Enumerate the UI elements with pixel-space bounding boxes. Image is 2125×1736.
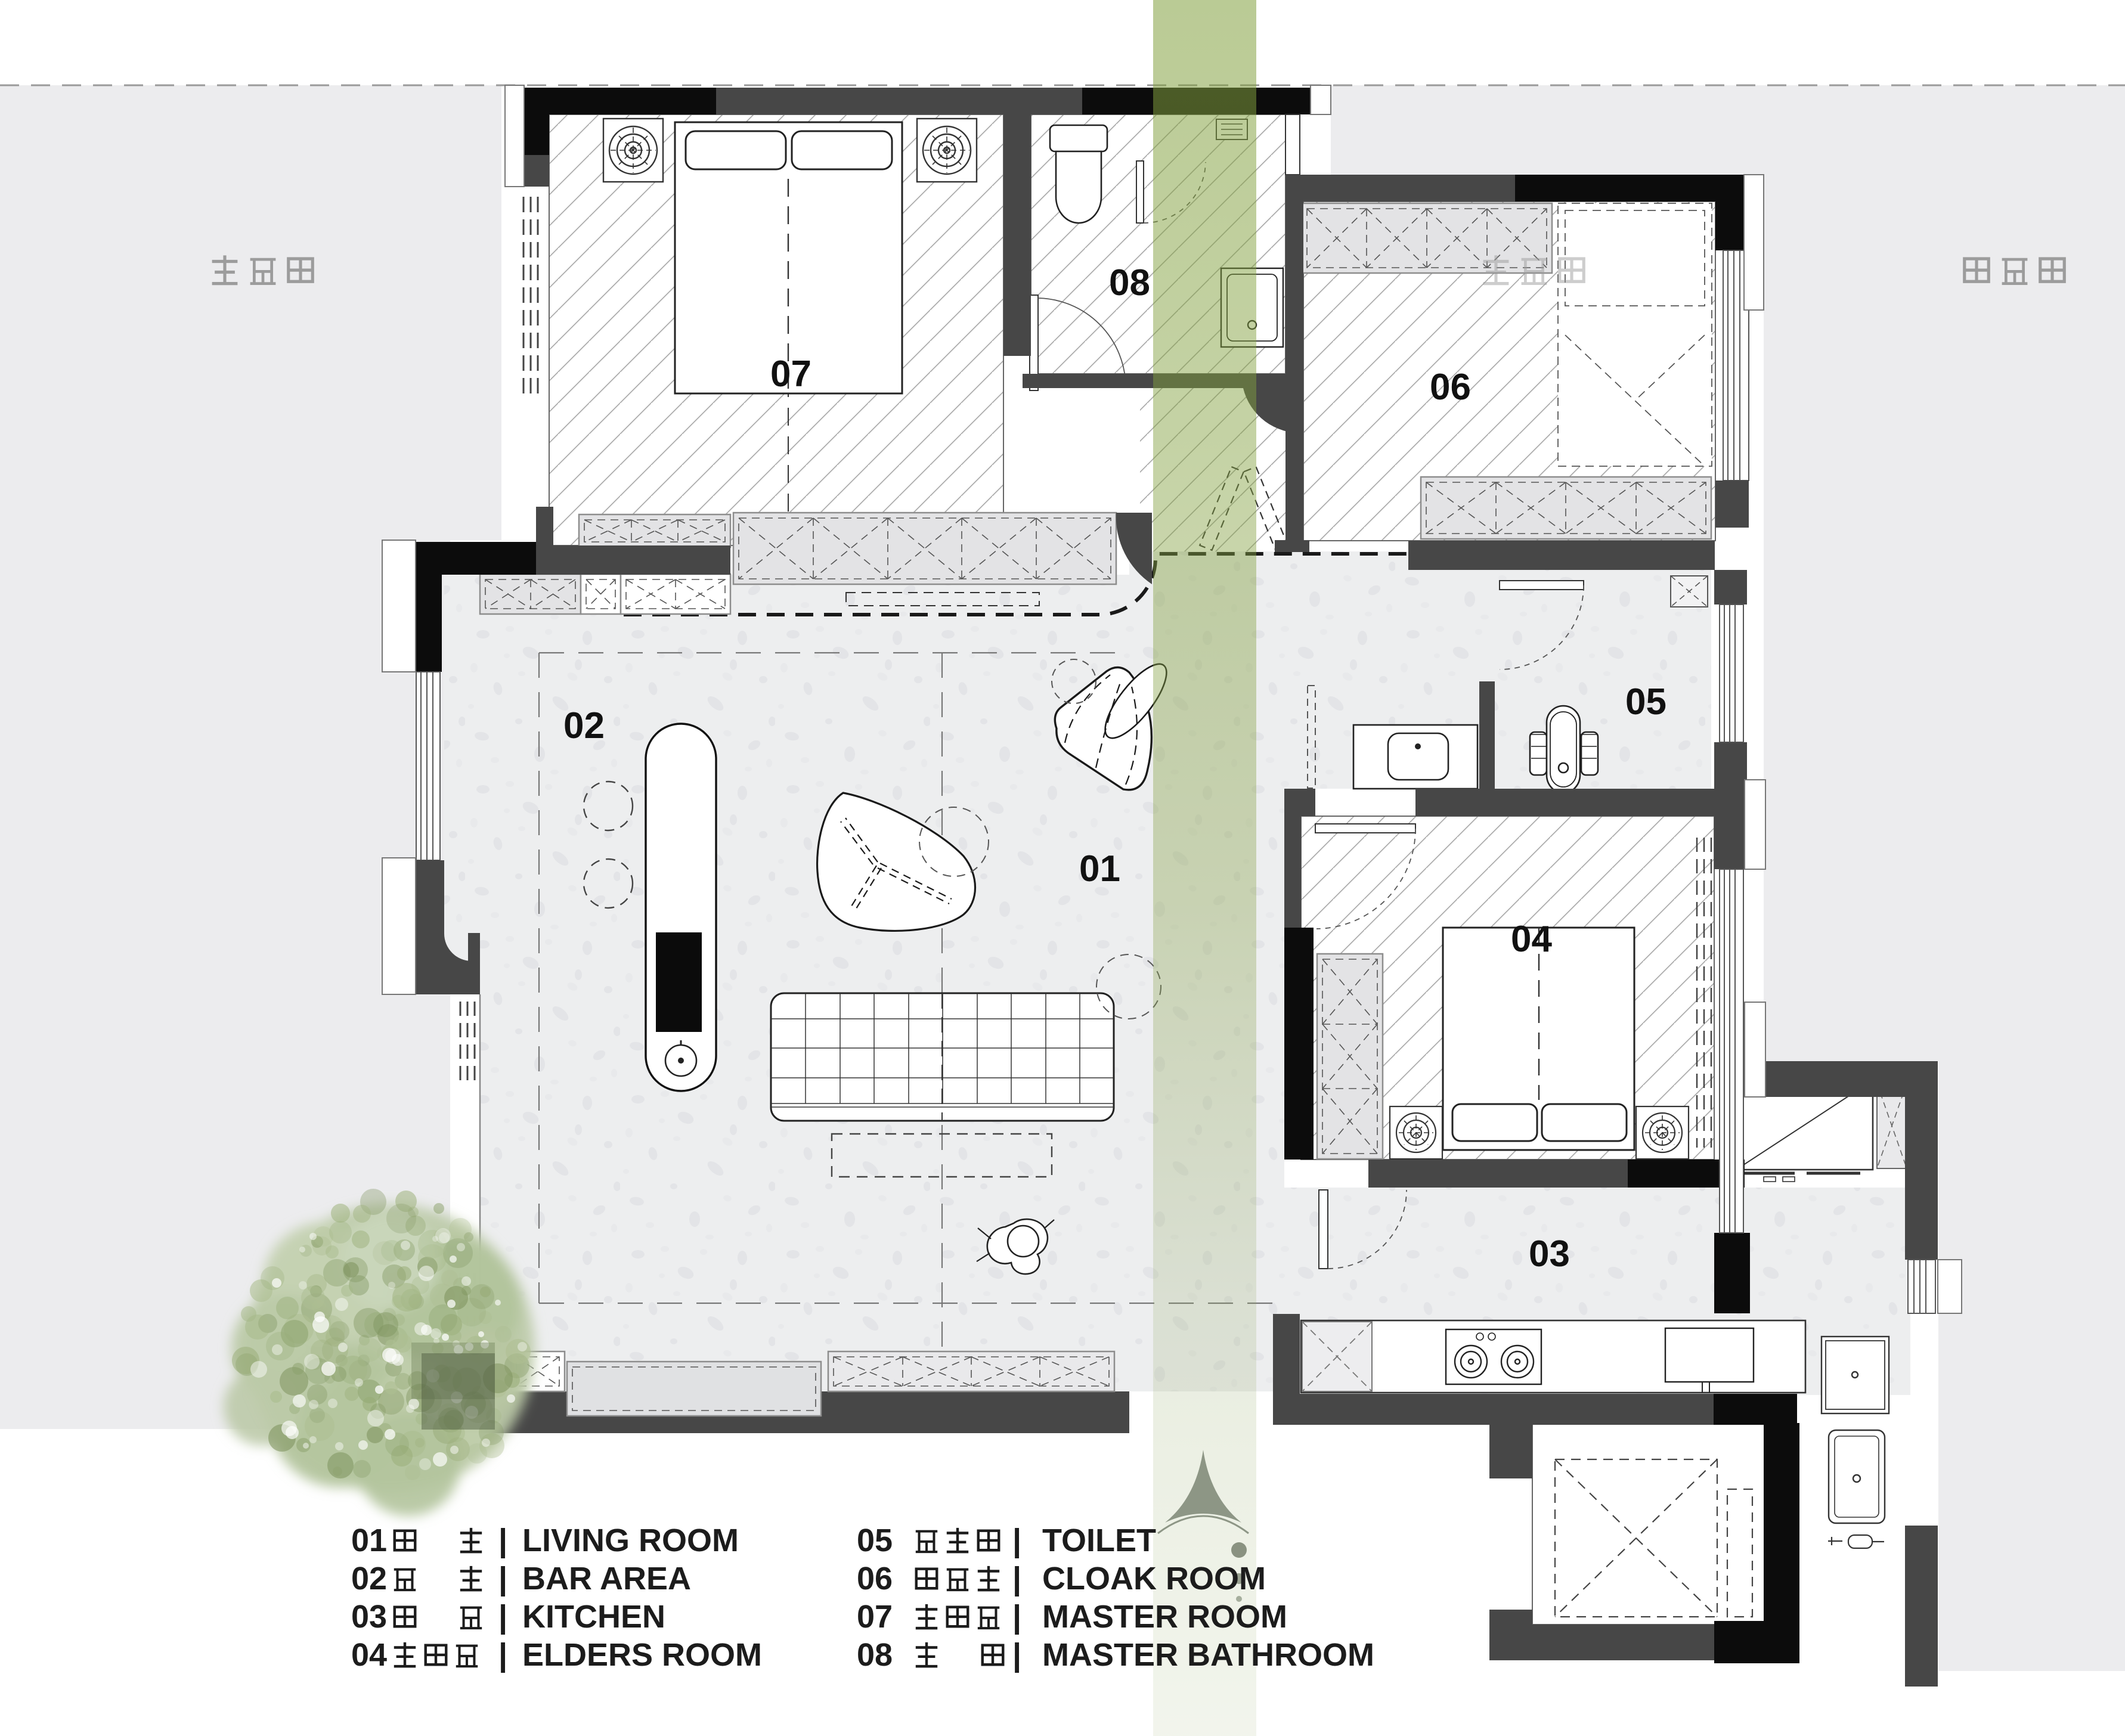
svg-text:KITCHEN: KITCHEN xyxy=(522,1599,665,1635)
svg-text:LIVING ROOM: LIVING ROOM xyxy=(522,1523,739,1558)
svg-text:05: 05 xyxy=(1625,681,1666,723)
svg-text:|: | xyxy=(498,1561,507,1597)
svg-text:|: | xyxy=(498,1523,507,1559)
svg-text:08: 08 xyxy=(1109,262,1150,303)
svg-text:|: | xyxy=(1012,1599,1021,1635)
svg-text:02: 02 xyxy=(563,705,605,746)
svg-text:02: 02 xyxy=(351,1561,387,1596)
svg-text:BAR AREA: BAR AREA xyxy=(522,1561,691,1596)
svg-text:MASTER BATHROOM: MASTER BATHROOM xyxy=(1042,1637,1374,1673)
svg-text:03: 03 xyxy=(351,1599,387,1635)
svg-text:TOILET: TOILET xyxy=(1042,1523,1156,1558)
svg-text:07: 07 xyxy=(857,1599,893,1635)
svg-text:|: | xyxy=(1012,1523,1021,1559)
svg-text:|: | xyxy=(498,1637,507,1673)
svg-text:06: 06 xyxy=(1430,367,1471,408)
svg-text:|: | xyxy=(498,1599,507,1635)
svg-text:|: | xyxy=(1012,1561,1021,1597)
svg-text:ELDERS ROOM: ELDERS ROOM xyxy=(522,1637,762,1673)
svg-text:08: 08 xyxy=(857,1637,893,1673)
svg-text:CLOAK ROOM: CLOAK ROOM xyxy=(1042,1561,1266,1596)
svg-text:MASTER ROOM: MASTER ROOM xyxy=(1042,1599,1287,1635)
svg-text:05: 05 xyxy=(857,1523,893,1558)
svg-text:04: 04 xyxy=(1511,919,1552,960)
svg-text:|: | xyxy=(1012,1637,1021,1673)
svg-text:03: 03 xyxy=(1529,1233,1570,1275)
svg-text:07: 07 xyxy=(770,354,811,395)
svg-text:04: 04 xyxy=(351,1637,387,1673)
svg-text:06: 06 xyxy=(857,1561,893,1596)
svg-text:01: 01 xyxy=(1079,848,1120,889)
svg-text:01: 01 xyxy=(351,1523,387,1558)
